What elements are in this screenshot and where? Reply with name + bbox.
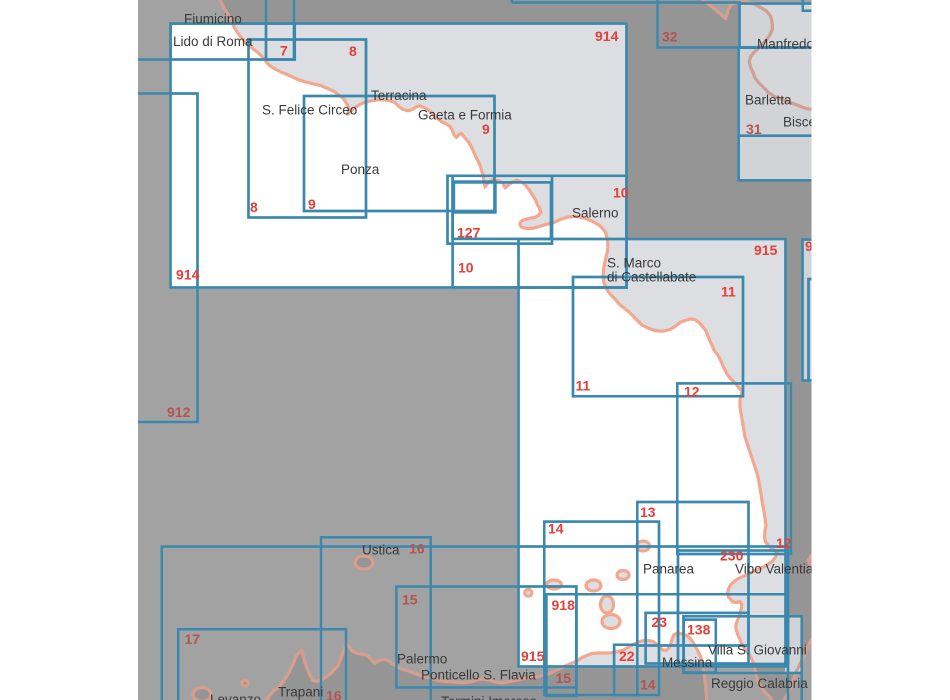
- svg-text:23: 23: [652, 614, 668, 630]
- svg-text:Messina: Messina: [662, 655, 713, 670]
- svg-text:138: 138: [687, 622, 711, 638]
- svg-text:Lido di Roma: Lido di Roma: [173, 34, 253, 49]
- svg-text:915: 915: [521, 648, 545, 664]
- svg-text:127: 127: [457, 225, 481, 241]
- svg-text:915: 915: [754, 242, 778, 258]
- svg-text:12: 12: [684, 384, 700, 400]
- svg-text:Ponza: Ponza: [341, 162, 380, 177]
- svg-text:13: 13: [640, 504, 656, 520]
- svg-text:8: 8: [250, 199, 258, 215]
- svg-text:22: 22: [619, 648, 635, 664]
- svg-text:17: 17: [185, 631, 201, 647]
- svg-text:Reggio Calabria: Reggio Calabria: [711, 676, 808, 691]
- svg-text:Termini Imerese: Termini Imerese: [441, 694, 537, 700]
- svg-text:15: 15: [556, 670, 572, 686]
- svg-text:11: 11: [721, 284, 736, 300]
- svg-text:Levanzo: Levanzo: [210, 692, 261, 700]
- svg-text:14: 14: [640, 677, 656, 693]
- svg-text:Trapani: Trapani: [278, 685, 323, 700]
- svg-text:14: 14: [548, 521, 564, 537]
- svg-text:S. Felice Circeo: S. Felice Circeo: [262, 103, 357, 118]
- svg-text:10: 10: [613, 185, 629, 201]
- svg-text:9: 9: [308, 196, 316, 212]
- svg-text:Villa S. Giovanni: Villa S. Giovanni: [708, 643, 807, 658]
- svg-text:Salerno: Salerno: [572, 206, 619, 221]
- svg-text:9: 9: [482, 121, 490, 137]
- svg-text:912: 912: [167, 404, 191, 420]
- svg-text:31: 31: [746, 121, 762, 137]
- svg-text:914: 914: [176, 267, 200, 283]
- svg-text:Gaeta e Formia: Gaeta e Formia: [418, 108, 512, 123]
- svg-text:Panarea: Panarea: [643, 562, 695, 577]
- svg-text:11: 11: [576, 378, 591, 394]
- svg-text:8: 8: [349, 43, 357, 59]
- svg-text:Vibo Valentia: Vibo Valentia: [735, 562, 814, 577]
- svg-text:10: 10: [458, 260, 474, 276]
- svg-text:7: 7: [280, 43, 288, 59]
- svg-text:Fiumicino: Fiumicino: [184, 12, 242, 27]
- svg-text:918: 918: [552, 597, 576, 613]
- svg-text:12: 12: [776, 535, 792, 551]
- svg-text:Palermo: Palermo: [397, 652, 447, 667]
- svg-text:16: 16: [326, 688, 342, 700]
- svg-text:15: 15: [402, 592, 418, 608]
- svg-text:Terracina: Terracina: [371, 88, 427, 103]
- svg-text:Ustica: Ustica: [362, 543, 400, 558]
- svg-text:32: 32: [662, 29, 678, 45]
- svg-text:Ponticello S. Flavia: Ponticello S. Flavia: [421, 668, 536, 683]
- svg-text:914: 914: [595, 28, 619, 44]
- svg-text:di Castellabate: di Castellabate: [607, 270, 696, 285]
- svg-text:Barletta: Barletta: [745, 93, 792, 108]
- svg-text:16: 16: [409, 541, 425, 557]
- svg-text:S. Marco: S. Marco: [607, 256, 661, 271]
